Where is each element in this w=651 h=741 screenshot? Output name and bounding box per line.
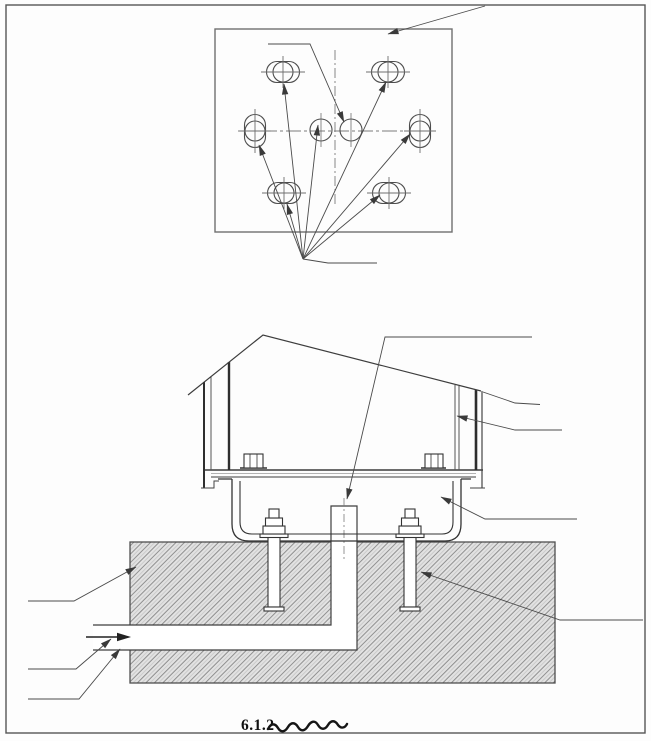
leader-to-left-gland-hole [303,125,318,259]
technical-drawing-canvas: 6.1.2 [0,0,651,741]
cable-gland-hole-right [340,113,362,147]
bolt-slot-top-right [366,56,410,88]
mounting-bolt-left [240,454,267,468]
bolt-slot-right-middle [404,109,436,153]
plan-leader-lines [259,6,485,263]
cable-gland-hole-left [310,113,332,147]
leader-to-right-wall [457,416,562,430]
anchor-rod [268,537,280,607]
leader-tail [303,259,377,263]
leader-to-right-middle-slot [303,134,410,259]
nut-lower [399,526,421,534]
bolt-stub [269,509,279,518]
bolt-slot-bottom-left [262,177,306,209]
leader-to-foundation [28,567,136,601]
nut-lower [263,526,285,534]
anchor-end-plate [400,607,420,611]
cabinet-right-wall [455,385,485,488]
bolt-head [425,454,443,468]
bolt-stub [405,509,415,518]
leader-to-top-left-slot [284,84,303,259]
nut-upper [402,518,419,526]
leader-to-cable-duct [347,337,532,499]
caption-illegible-scribble [268,721,347,731]
figure-caption: 6.1.2 [241,717,347,734]
bolt-slot-bottom-right [367,177,411,209]
leader-to-bottom-right-slot [303,195,380,259]
plan-view-base-plate [215,6,485,263]
leader-from-outer-panel [483,392,540,405]
bolt-head [244,454,263,468]
base-plate-outline [215,29,452,232]
cabinet-roof-line [188,335,481,395]
section-view-foundation [28,335,643,699]
drawing-sheet: 6.1.2 [0,0,651,741]
leader-to-plate-from-top-border [388,6,485,34]
mounting-bolt-right [421,454,446,468]
cabinet-bottom-rail [204,470,483,477]
leader-to-conduit-pipe [28,649,120,699]
anchor-rod [404,537,416,607]
bolt-slot-top-left [261,56,305,88]
anchor-end-plate [264,607,284,611]
bolt-slot-left-middle [239,109,271,153]
nut-upper [266,518,283,526]
